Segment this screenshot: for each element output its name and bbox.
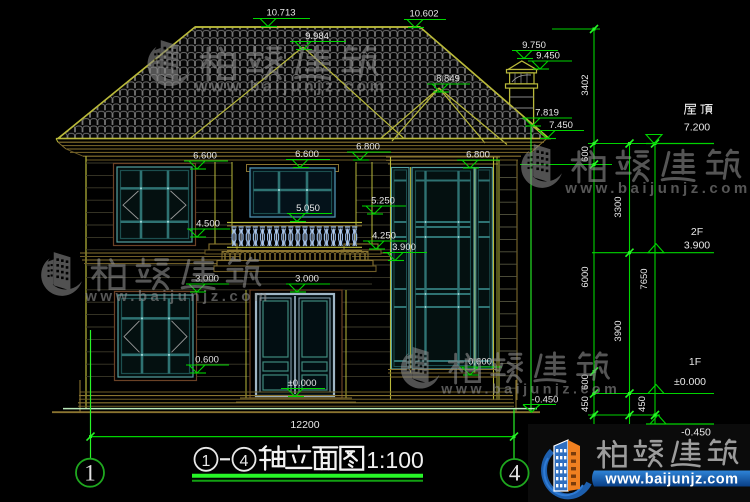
svg-text:www.baijunjz.com: www.baijunjz.com	[194, 79, 387, 96]
svg-text:4.500: 4.500	[196, 219, 220, 230]
svg-text:9.984: 9.984	[305, 31, 329, 42]
svg-text:9.450: 9.450	[536, 51, 560, 62]
svg-text:6000: 6000	[580, 266, 591, 287]
svg-text:www.baijunjz.com: www.baijunjz.com	[564, 180, 750, 197]
svg-text:8.849: 8.849	[436, 74, 460, 85]
svg-text:7.819: 7.819	[535, 108, 559, 119]
svg-text:4: 4	[509, 461, 521, 486]
svg-text:450: 450	[580, 396, 591, 412]
svg-text:7.200: 7.200	[684, 122, 710, 134]
svg-text:-0.450: -0.450	[681, 427, 711, 439]
svg-text:3402: 3402	[580, 74, 591, 95]
svg-text:1: 1	[84, 461, 96, 486]
svg-text:1:100: 1:100	[366, 447, 424, 473]
svg-text:7.450: 7.450	[549, 120, 573, 131]
svg-text:3900: 3900	[613, 320, 624, 341]
svg-text:0.600: 0.600	[195, 355, 219, 366]
svg-text:4: 4	[240, 453, 249, 470]
svg-text:±0.000: ±0.000	[288, 378, 317, 389]
svg-text:6.800: 6.800	[466, 150, 490, 161]
svg-text:9.750: 9.750	[522, 40, 546, 51]
svg-text:1: 1	[202, 453, 211, 470]
svg-text:5.250: 5.250	[371, 196, 395, 207]
svg-text:3.000: 3.000	[295, 274, 319, 285]
svg-text:450: 450	[637, 396, 648, 412]
svg-text:6.600: 6.600	[193, 151, 217, 162]
svg-text:www.baijunjz.com: www.baijunjz.com	[604, 471, 738, 487]
svg-text:10.713: 10.713	[266, 8, 295, 19]
svg-text:3300: 3300	[613, 196, 624, 217]
svg-text:2F: 2F	[691, 226, 703, 238]
svg-text:3.900: 3.900	[684, 240, 710, 252]
svg-text:1F: 1F	[689, 356, 701, 368]
svg-text:7650: 7650	[639, 268, 650, 289]
svg-text:10.602: 10.602	[409, 9, 438, 20]
svg-text:6.600: 6.600	[295, 149, 319, 160]
svg-text:±0.000: ±0.000	[674, 376, 706, 388]
svg-text:12200: 12200	[290, 419, 319, 431]
svg-text:3.900: 3.900	[392, 242, 416, 253]
svg-text:5.050: 5.050	[296, 203, 320, 214]
svg-text:www.baijunjz.com: www.baijunjz.com	[440, 381, 620, 397]
svg-text:www.baijunjz.com: www.baijunjz.com	[84, 288, 270, 305]
svg-text:6.800: 6.800	[356, 142, 380, 153]
svg-text:4.250: 4.250	[372, 231, 396, 242]
